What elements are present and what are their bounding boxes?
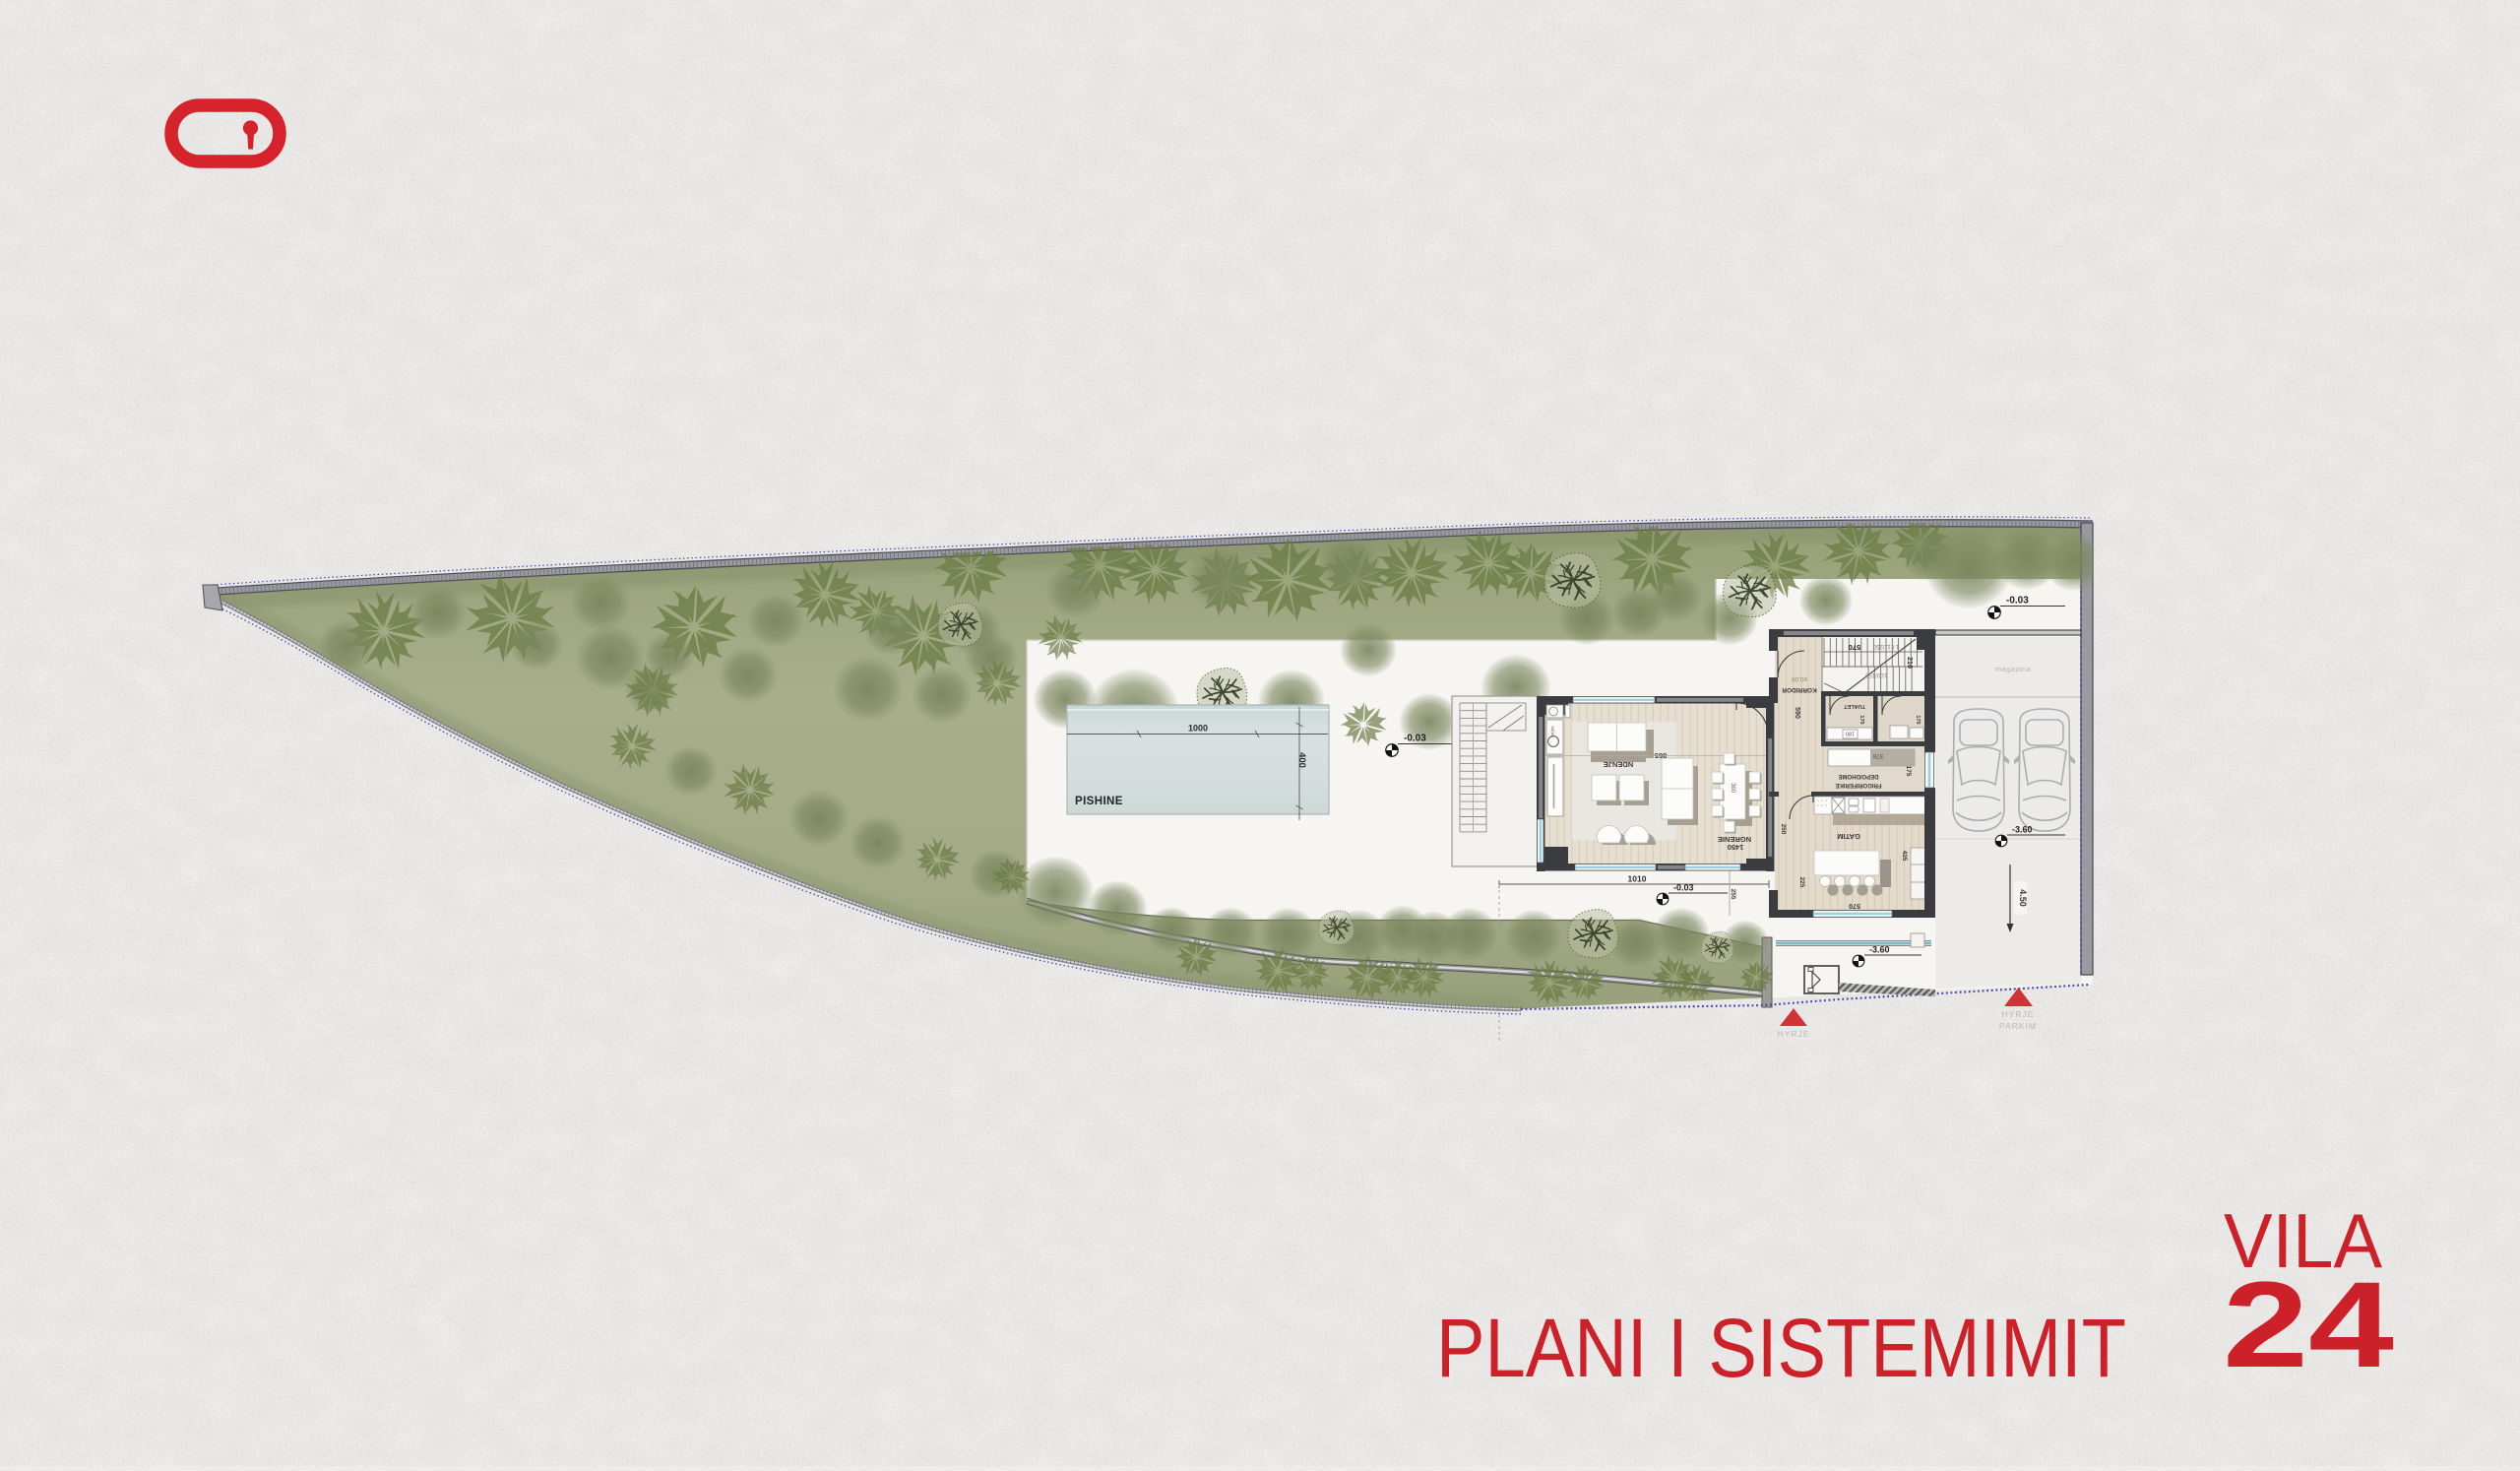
svg-text:180: 180: [1846, 731, 1855, 736]
svg-text:360: 360: [1730, 783, 1735, 794]
svg-text:400: 400: [1296, 752, 1307, 768]
svg-text:-3.60: -3.60: [2012, 825, 2033, 835]
svg-text:NGRENIE: NGRENIE: [1718, 835, 1751, 844]
svg-text:376: 376: [1872, 752, 1883, 759]
svg-text:NDENJE: NDENJE: [1604, 760, 1633, 769]
svg-text:HYRJE: HYRJE: [1778, 1029, 1810, 1039]
svg-text:-0.03: -0.03: [2006, 596, 2029, 607]
svg-text:170: 170: [1915, 715, 1921, 724]
svg-text:PISHINE: PISHINE: [1075, 796, 1123, 807]
svg-text:-0.03: -0.03: [1404, 734, 1426, 744]
svg-text:435: 435: [1901, 851, 1908, 862]
svg-text:570: 570: [1849, 902, 1860, 909]
svg-text:100/150: 100/150: [1865, 672, 1887, 677]
svg-text:4.50: 4.50: [2018, 889, 2028, 907]
svg-text:1000: 1000: [1188, 724, 1208, 734]
svg-text:GATIM: GATIM: [1837, 832, 1860, 841]
svg-text:-0.03: -0.03: [1673, 883, 1694, 893]
svg-text:1010: 1010: [1628, 874, 1647, 884]
svg-text:250: 250: [1780, 824, 1787, 835]
svg-text:magazina: magazina: [1995, 665, 2032, 673]
svg-text:255: 255: [1730, 889, 1736, 900]
svg-text:175: 175: [1905, 766, 1912, 777]
svg-text:1 t 11/250: 1 t 11/250: [1872, 643, 1899, 649]
svg-text:-3.60: -3.60: [1869, 945, 1890, 955]
svg-text:TUALET: TUALET: [1844, 703, 1865, 709]
svg-text:570: 570: [1849, 643, 1861, 652]
svg-text:KORRIDOR: KORRIDOR: [1782, 686, 1817, 693]
svg-text:24: 24: [2223, 1257, 2394, 1393]
svg-text:±0.00: ±0.00: [1792, 675, 1808, 682]
svg-text:oo|oo: oo|oo: [1550, 726, 1555, 737]
svg-text:170: 170: [1858, 715, 1864, 724]
svg-text:590: 590: [1794, 707, 1800, 719]
svg-text:210: 210: [1906, 657, 1913, 669]
svg-text:HYRJE: HYRJE: [2002, 1009, 2035, 1019]
svg-text:PARKIM: PARKIM: [1999, 1021, 2037, 1031]
svg-text:225: 225: [1798, 877, 1805, 888]
svg-text:PLANI I SISTEMIMIT: PLANI I SISTEMIMIT: [1436, 1302, 2126, 1394]
svg-text:FRIGORIFERIKE: FRIGORIFERIKE: [1835, 782, 1881, 788]
svg-text:DEPO/DHOME: DEPO/DHOME: [1838, 773, 1878, 779]
svg-text:1450: 1450: [1728, 843, 1744, 852]
